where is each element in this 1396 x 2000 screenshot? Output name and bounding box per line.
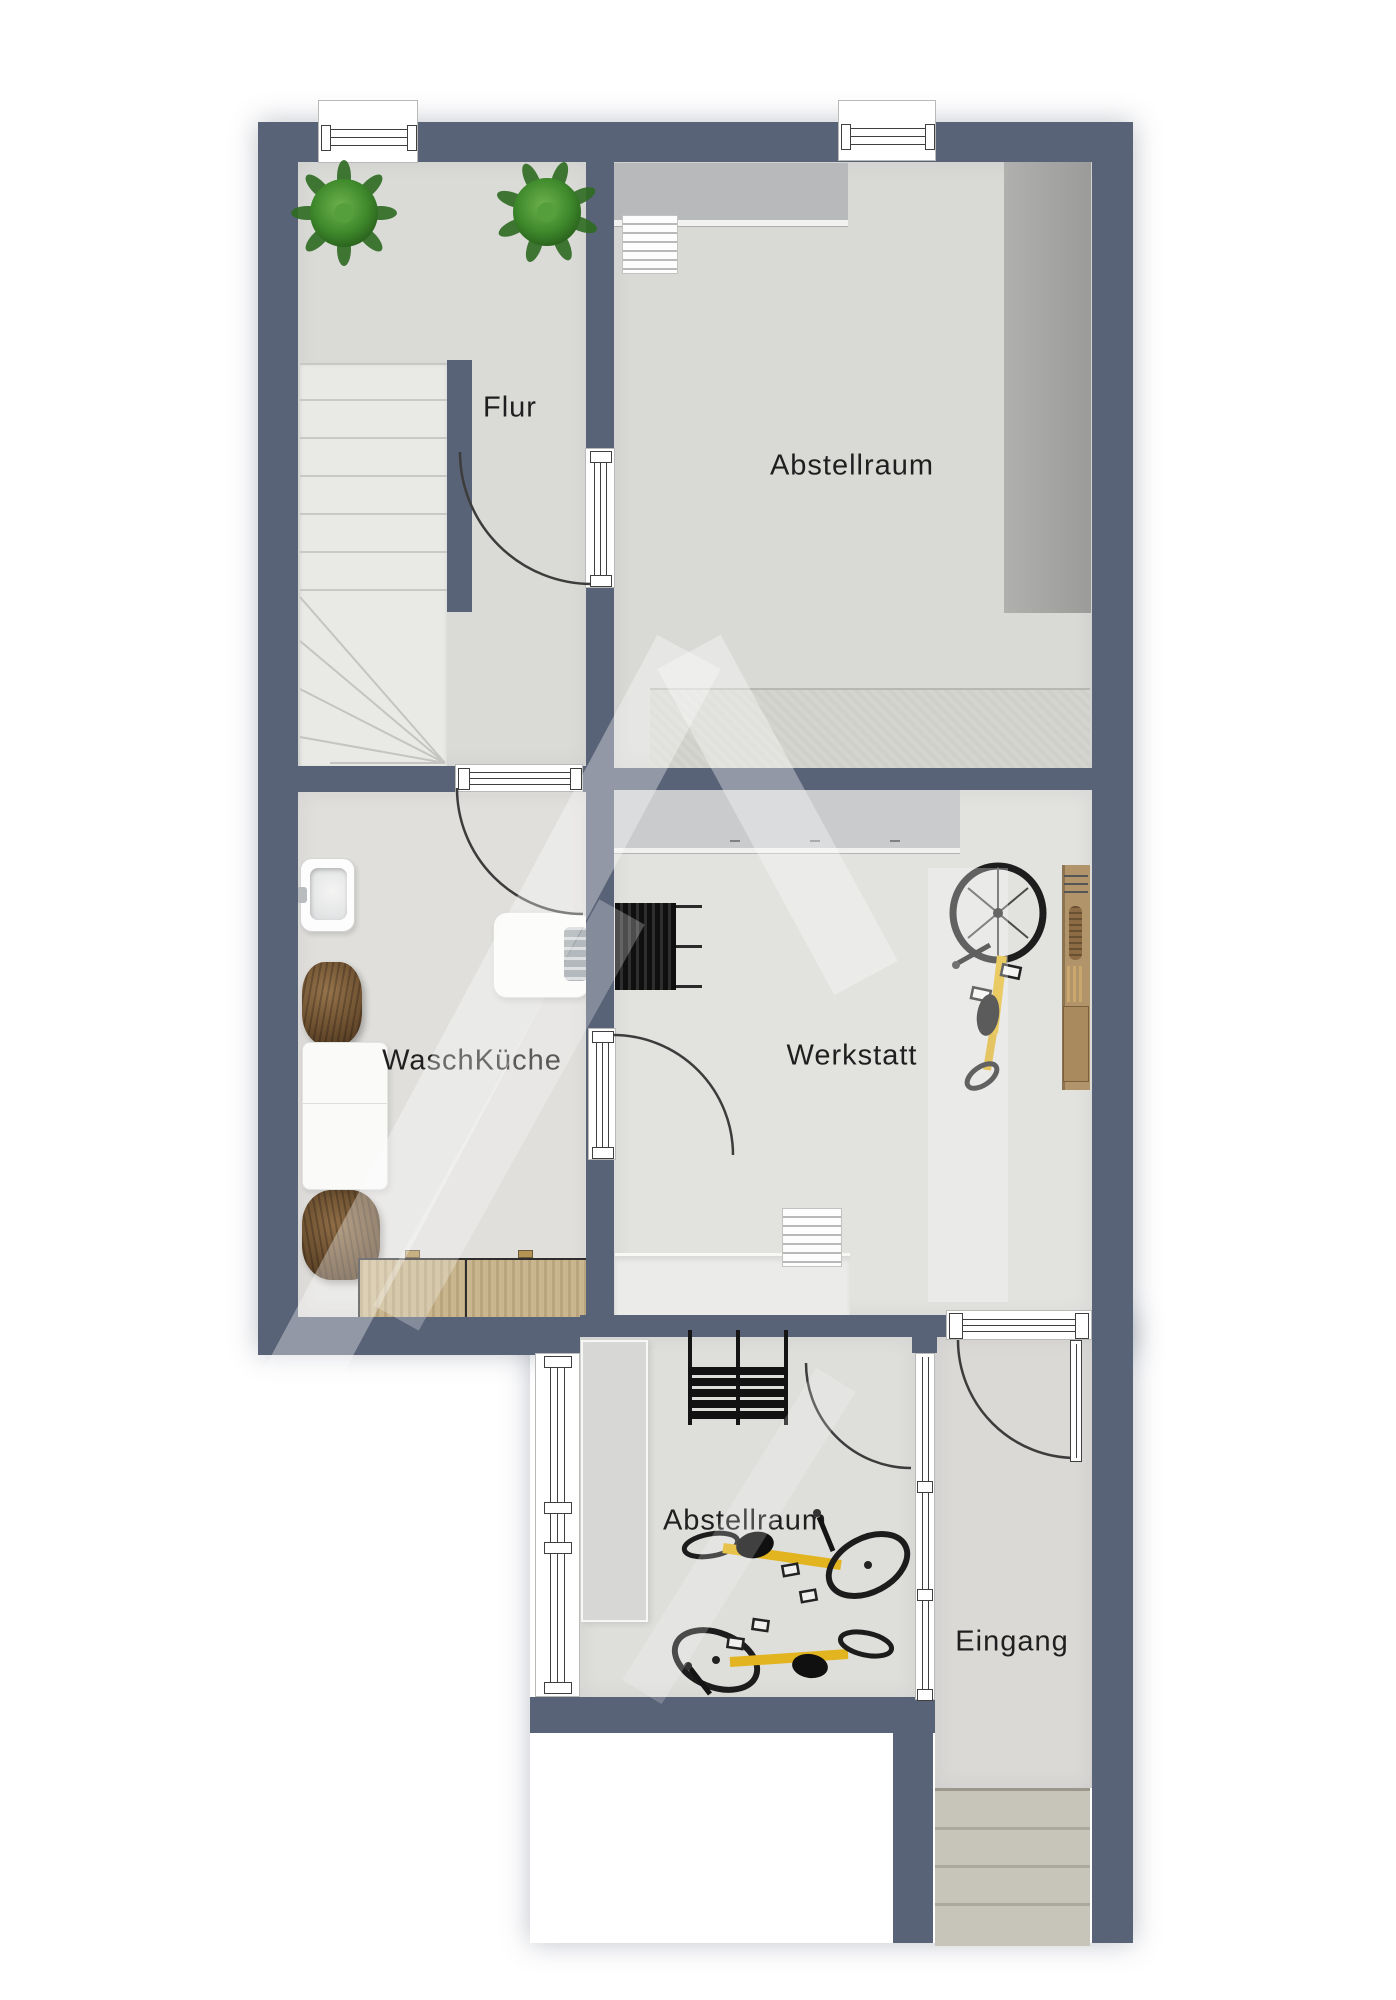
overlay-graphics [0, 0, 1396, 2000]
plant-icon [291, 160, 397, 266]
door-arc-eingang [958, 1340, 1076, 1458]
door-cap [592, 1031, 614, 1043]
window-cap [407, 125, 417, 151]
door-cap [590, 575, 612, 587]
plant-icon [495, 160, 599, 264]
floor-plan: Flur Abstellraum WaschKüche Werkstatt Ab… [0, 0, 1396, 2000]
window-cap [917, 1689, 933, 1701]
window-cap [321, 125, 331, 151]
stair-winder-fan [300, 597, 445, 763]
window-cap [544, 1542, 572, 1554]
door-glazing [1076, 1344, 1077, 1458]
window-cap [925, 124, 935, 150]
window-cap [917, 1481, 933, 1493]
door-cap [949, 1313, 963, 1339]
door-cap [1075, 1313, 1089, 1339]
door-cap [592, 1147, 614, 1159]
window-cap [544, 1682, 572, 1694]
stair-tread-lines [300, 364, 447, 590]
door-cap [570, 768, 582, 790]
window-cap [544, 1356, 572, 1368]
window-cap [917, 1589, 933, 1601]
door-cap [590, 451, 612, 463]
door-cap [458, 768, 470, 790]
window-cap [841, 124, 851, 150]
door-arc-werkstatt [613, 1035, 733, 1155]
door-leaf-eingang [1070, 1340, 1082, 1462]
window-cap [544, 1502, 572, 1514]
door-arc-flur-abstellraum [460, 452, 592, 584]
